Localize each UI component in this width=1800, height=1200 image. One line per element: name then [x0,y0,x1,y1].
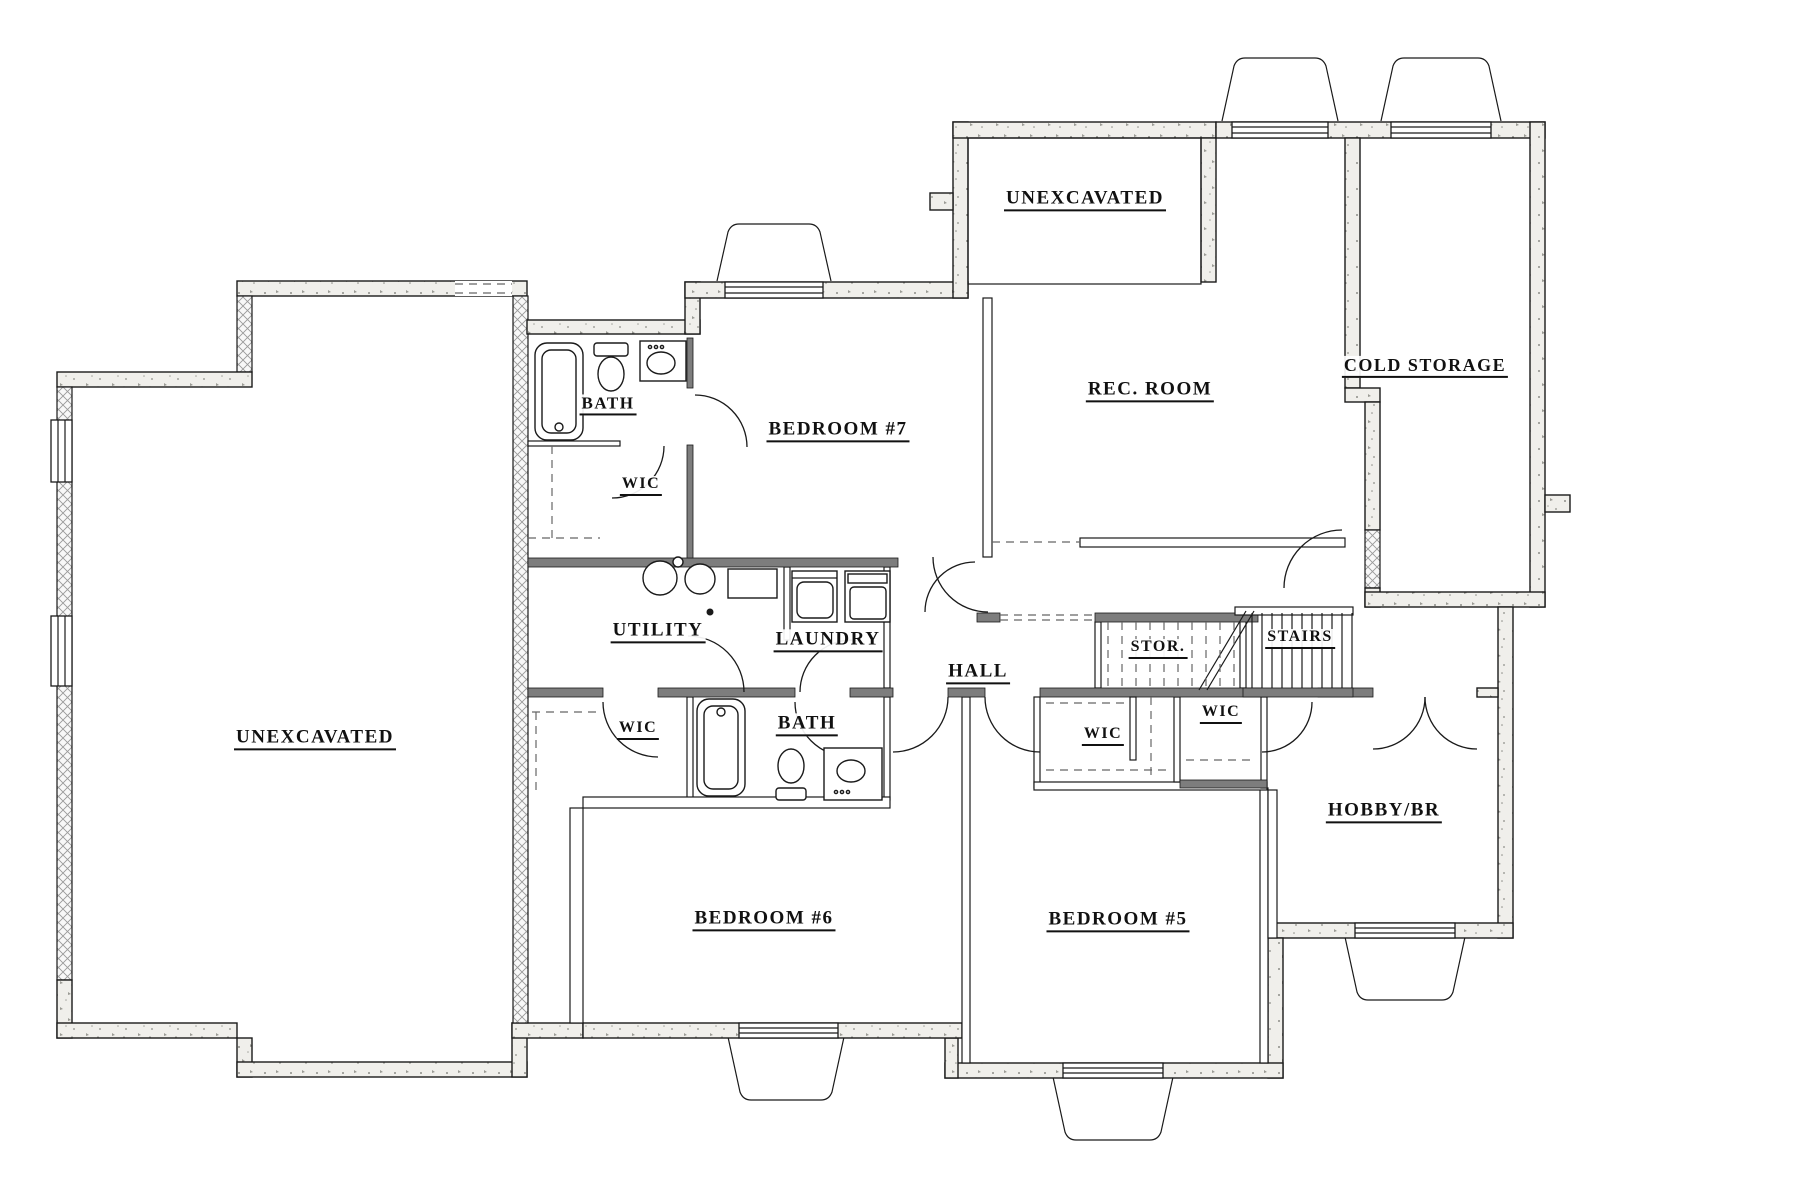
floor-plan-drawing [0,0,1800,1200]
room-label-bedroom-5: BEDROOM #5 [1046,909,1189,932]
window-well [1381,58,1501,121]
door-swing [925,562,975,612]
wall [1530,122,1545,607]
window [1232,122,1328,138]
interior-walls [528,298,1345,1063]
wall [1365,592,1545,607]
stair-break-line [1207,611,1254,690]
window-well [728,1037,844,1100]
equipment-icon [707,569,778,616]
room-label-wic-lower-left: WIC [617,720,659,740]
room-label-stairs: STAIRS [1265,629,1335,649]
wall [1243,688,1353,697]
wall [1174,697,1180,782]
window [51,420,72,482]
bathtub-icon [697,699,745,796]
wall [1261,697,1267,788]
room-label-rec-room: REC. ROOM [1086,379,1214,402]
double-door-swing [1373,697,1425,749]
wall [237,1062,527,1077]
wall [1545,495,1570,512]
wall [528,688,603,697]
door-swing [688,636,744,692]
wall [953,122,968,298]
room-label-hobby-br: HOBBY/BR [1326,800,1442,823]
window-well [1222,58,1338,121]
wall [687,697,693,800]
window-well [1053,1077,1173,1140]
wall [512,1023,583,1038]
room-label-wic-upper: WIC [620,476,662,496]
wall [528,558,898,567]
wall [850,688,893,697]
window [1063,1063,1163,1078]
wall [528,441,620,446]
wall [1498,607,1513,938]
window [51,616,72,686]
door-swing [933,557,988,612]
wall [884,697,890,800]
wall [570,808,583,1023]
wall [57,1023,237,1038]
room-label-laundry: LAUNDRY [774,629,883,652]
wall [983,298,992,557]
door-swing [1262,702,1312,752]
door-swing [695,395,747,447]
room-label-wic-center: WIC [1082,726,1124,746]
door-swing [893,697,948,752]
wall [1130,697,1136,760]
wall [1477,688,1498,697]
room-label-bath-upper: BATH [580,394,637,415]
wall [1034,697,1040,788]
toilet-icon [776,749,806,800]
floor-plan-canvas: UNEXCAVATEDUNEXCAVATEDREC. ROOMCOLD STOR… [0,0,1800,1200]
wall [1201,138,1216,282]
wall [1268,790,1277,938]
wall [962,697,970,1063]
room-label-hall: HALL [946,661,1010,684]
wall [1040,688,1262,697]
wall [1345,388,1380,402]
toilet-icon [594,343,628,391]
window [1391,122,1491,138]
wall [1180,780,1267,788]
room-label-bedroom-7: BEDROOM #7 [766,419,909,442]
room-label-wic-right: WIC [1200,704,1242,724]
room-label-bedroom-6: BEDROOM #6 [692,908,835,931]
room-label-cold-storage: COLD STORAGE [1342,356,1508,378]
wall-opening [455,281,512,296]
wall [1095,613,1258,622]
dryer-icon [845,571,890,622]
wall [953,122,1216,138]
wall [1268,938,1283,1078]
room-label-bath-lower: BATH [776,713,838,736]
window [725,282,823,298]
wall [57,372,252,387]
room-label-unexcavated-top: UNEXCAVATED [1004,188,1166,211]
wall [687,338,693,388]
wall [977,613,1000,622]
sink-icon [824,748,882,800]
foundation-wall [237,296,252,372]
room-label-stor: STOR. [1129,639,1188,659]
door-swing [985,697,1040,752]
washer-icon [792,571,837,622]
wall [930,193,953,210]
bathtub-icon [535,343,583,440]
foundation-wall [1365,530,1380,588]
wall [1345,138,1360,388]
wall [948,688,985,697]
wall [1260,788,1268,1063]
wall [687,445,693,558]
wall [658,688,795,697]
wall [1095,622,1101,688]
window [739,1023,838,1038]
foundation-wall [513,296,528,1023]
sink-icon [640,341,686,381]
room-label-unexcavated-left: UNEXCAVATED [234,727,396,750]
window [1355,923,1455,938]
window-well [1345,937,1465,1000]
wall [527,320,700,334]
double-door-swing [1425,697,1477,749]
wall [945,1038,958,1078]
room-label-utility: UTILITY [611,620,706,643]
window-well [717,224,831,281]
wall [1240,613,1246,688]
wall [1365,402,1380,530]
